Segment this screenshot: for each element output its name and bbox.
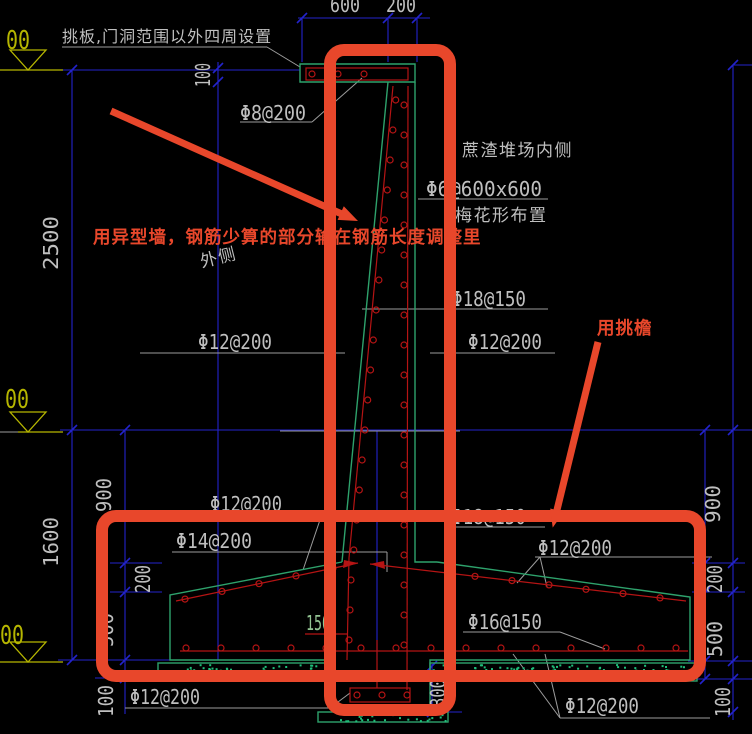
dim-wall-height: 2500 <box>39 216 63 270</box>
label-footing-slope-left-bar: Φ14@200 <box>176 529 252 553</box>
dim-top-left: 600 <box>330 0 360 17</box>
label-footing-bottom-right-bar: Φ16@150 <box>468 610 542 634</box>
label-wall-main-bar: Φ18@150 <box>452 287 526 311</box>
slab-rebar-cage <box>306 68 408 80</box>
elevation-value-top: 00 <box>6 26 30 56</box>
dim-left-100: 100 <box>94 685 118 717</box>
label-mesh: Φ6@600x600 <box>426 177 542 201</box>
wall-inner-bar <box>407 86 408 690</box>
dim-right-100: 100 <box>711 687 735 717</box>
label-wall-left-bar: Φ12@200 <box>198 330 272 354</box>
label-bottom-left-bar: Φ12@200 <box>130 685 200 709</box>
dimension-layer <box>58 13 752 720</box>
dim-slab-thickness: 100 <box>191 63 215 87</box>
dim-left-200: 200 <box>131 565 155 593</box>
label-wall-right-bar: Φ12@200 <box>468 330 542 354</box>
dim-top-right: 200 <box>386 0 416 17</box>
dim-left-900: 900 <box>92 478 116 512</box>
markup-arrow-2-shaft <box>556 342 598 514</box>
footing-slope-bar-right <box>370 564 686 601</box>
note-yard-side: 蔗渣堆场内侧 <box>462 141 573 161</box>
cantilever-slab-outline <box>300 64 415 82</box>
markup-note-wall: 用异型墙，钢筋少算的部分输在钢筋长度调整里 <box>93 227 482 248</box>
label-bottom-right-bar: Φ12@200 <box>565 694 639 718</box>
cad-viewport: 00 00 00 挑板,门洞范围以外四周设置 600 200 100 Φ8@20… <box>0 0 752 734</box>
markup-arrow-1-head <box>338 206 358 221</box>
cad-drawing: 00 00 00 挑板,门洞范围以外四周设置 600 200 100 Φ8@20… <box>0 0 752 734</box>
note-cantilever-slab: 挑板,门洞范围以外四周设置 <box>62 27 272 46</box>
elevation-value-mid: 00 <box>5 385 29 415</box>
note-mesh-layout: 梅花形布置 <box>455 206 548 226</box>
cad-text-layer: 挑板,门洞范围以外四周设置 600 200 100 Φ8@200 蔗渣堆场内侧 … <box>39 0 735 718</box>
markup-note-eave: 用挑檐 <box>597 318 653 339</box>
dim-right-900: 900 <box>701 485 725 523</box>
dim-right-200: 200 <box>703 565 727 593</box>
rebar-layer <box>176 68 688 702</box>
elevation-symbol-mid <box>10 412 46 432</box>
label-slab-rebar: Φ8@200 <box>240 101 306 125</box>
dim-right-500: 500 <box>703 621 727 657</box>
key-rebar-cage <box>350 688 410 702</box>
markup-layer: 用异型墙，钢筋少算的部分输在钢筋长度调整里 用挑檐 <box>93 50 700 710</box>
elevation-value-bottom: 00 <box>0 621 24 651</box>
markup-arrow-1-shaft <box>111 111 344 215</box>
note-outer-side: 外侧 <box>198 244 239 272</box>
structure-outline-layer <box>158 64 697 722</box>
label-footing-slope-right-bar: Φ12@200 <box>538 536 612 560</box>
dim-footing-height: 1600 <box>39 517 63 567</box>
